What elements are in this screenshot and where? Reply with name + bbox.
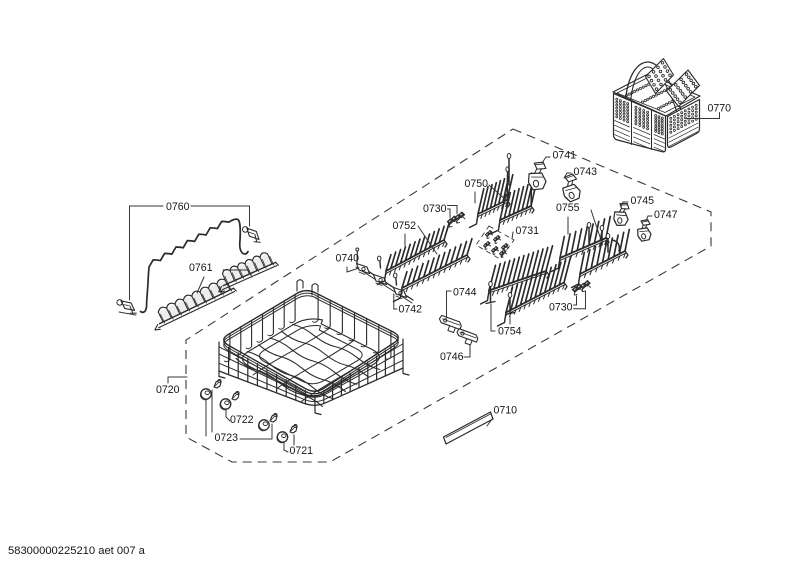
svg-text:0754: 0754 [498, 326, 522, 338]
svg-text:0720: 0720 [156, 384, 180, 396]
svg-text:0721: 0721 [290, 445, 314, 457]
svg-text:0747: 0747 [654, 209, 678, 221]
svg-text:58300000225210 aet 007 a: 58300000225210 aet 007 a [8, 545, 146, 557]
svg-text:0752: 0752 [393, 220, 417, 232]
svg-text:0722: 0722 [230, 414, 254, 426]
svg-text:0741: 0741 [553, 150, 577, 162]
svg-text:0730: 0730 [423, 203, 447, 215]
svg-text:0760: 0760 [166, 201, 190, 213]
svg-text:0755: 0755 [556, 202, 580, 214]
svg-text:0744: 0744 [453, 287, 477, 299]
svg-text:0742: 0742 [399, 304, 423, 316]
svg-text:0740: 0740 [336, 253, 360, 265]
svg-text:0743: 0743 [574, 166, 598, 178]
svg-text:0710: 0710 [494, 405, 518, 417]
svg-text:0731: 0731 [516, 225, 540, 237]
svg-text:0745: 0745 [631, 195, 655, 207]
svg-text:0746: 0746 [440, 351, 464, 363]
svg-text:0723: 0723 [215, 432, 239, 444]
svg-text:0750: 0750 [465, 178, 489, 190]
svg-text:0761: 0761 [189, 262, 213, 274]
svg-text:0730: 0730 [549, 302, 573, 314]
